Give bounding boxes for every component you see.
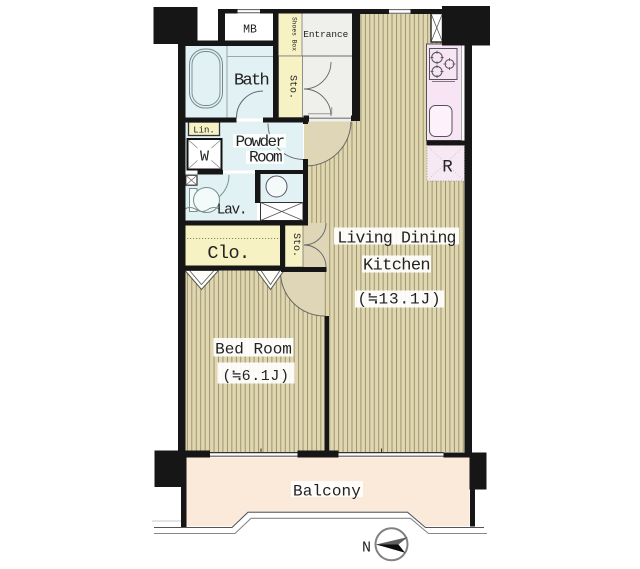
svg-text:Living Dining: Living Dining [337, 229, 455, 248]
svg-text:Clo.: Clo. [207, 243, 249, 264]
svg-text:N: N [362, 540, 371, 557]
svg-text:(≒13.1J): (≒13.1J) [357, 291, 441, 309]
svg-text:W: W [200, 149, 209, 166]
svg-text:Bed Room: Bed Room [215, 341, 292, 359]
svg-text:Sto.: Sto. [290, 233, 301, 257]
svg-text:R: R [442, 158, 453, 178]
svg-text:Balcony: Balcony [293, 483, 361, 501]
svg-text:Bath: Bath [234, 72, 269, 91]
svg-text:Kitchen: Kitchen [363, 257, 430, 276]
svg-text:Sto.: Sto. [287, 75, 298, 99]
svg-text:Entrance: Entrance [303, 29, 348, 40]
svg-text:Room: Room [249, 149, 282, 167]
svg-text:(≒6.1J): (≒6.1J) [222, 368, 289, 385]
svg-text:Lin.: Lin. [193, 126, 215, 136]
svg-text:Shoes Box: Shoes Box [291, 17, 298, 51]
svg-text:MB: MB [243, 24, 257, 37]
svg-text:Lav.: Lav. [217, 203, 247, 219]
